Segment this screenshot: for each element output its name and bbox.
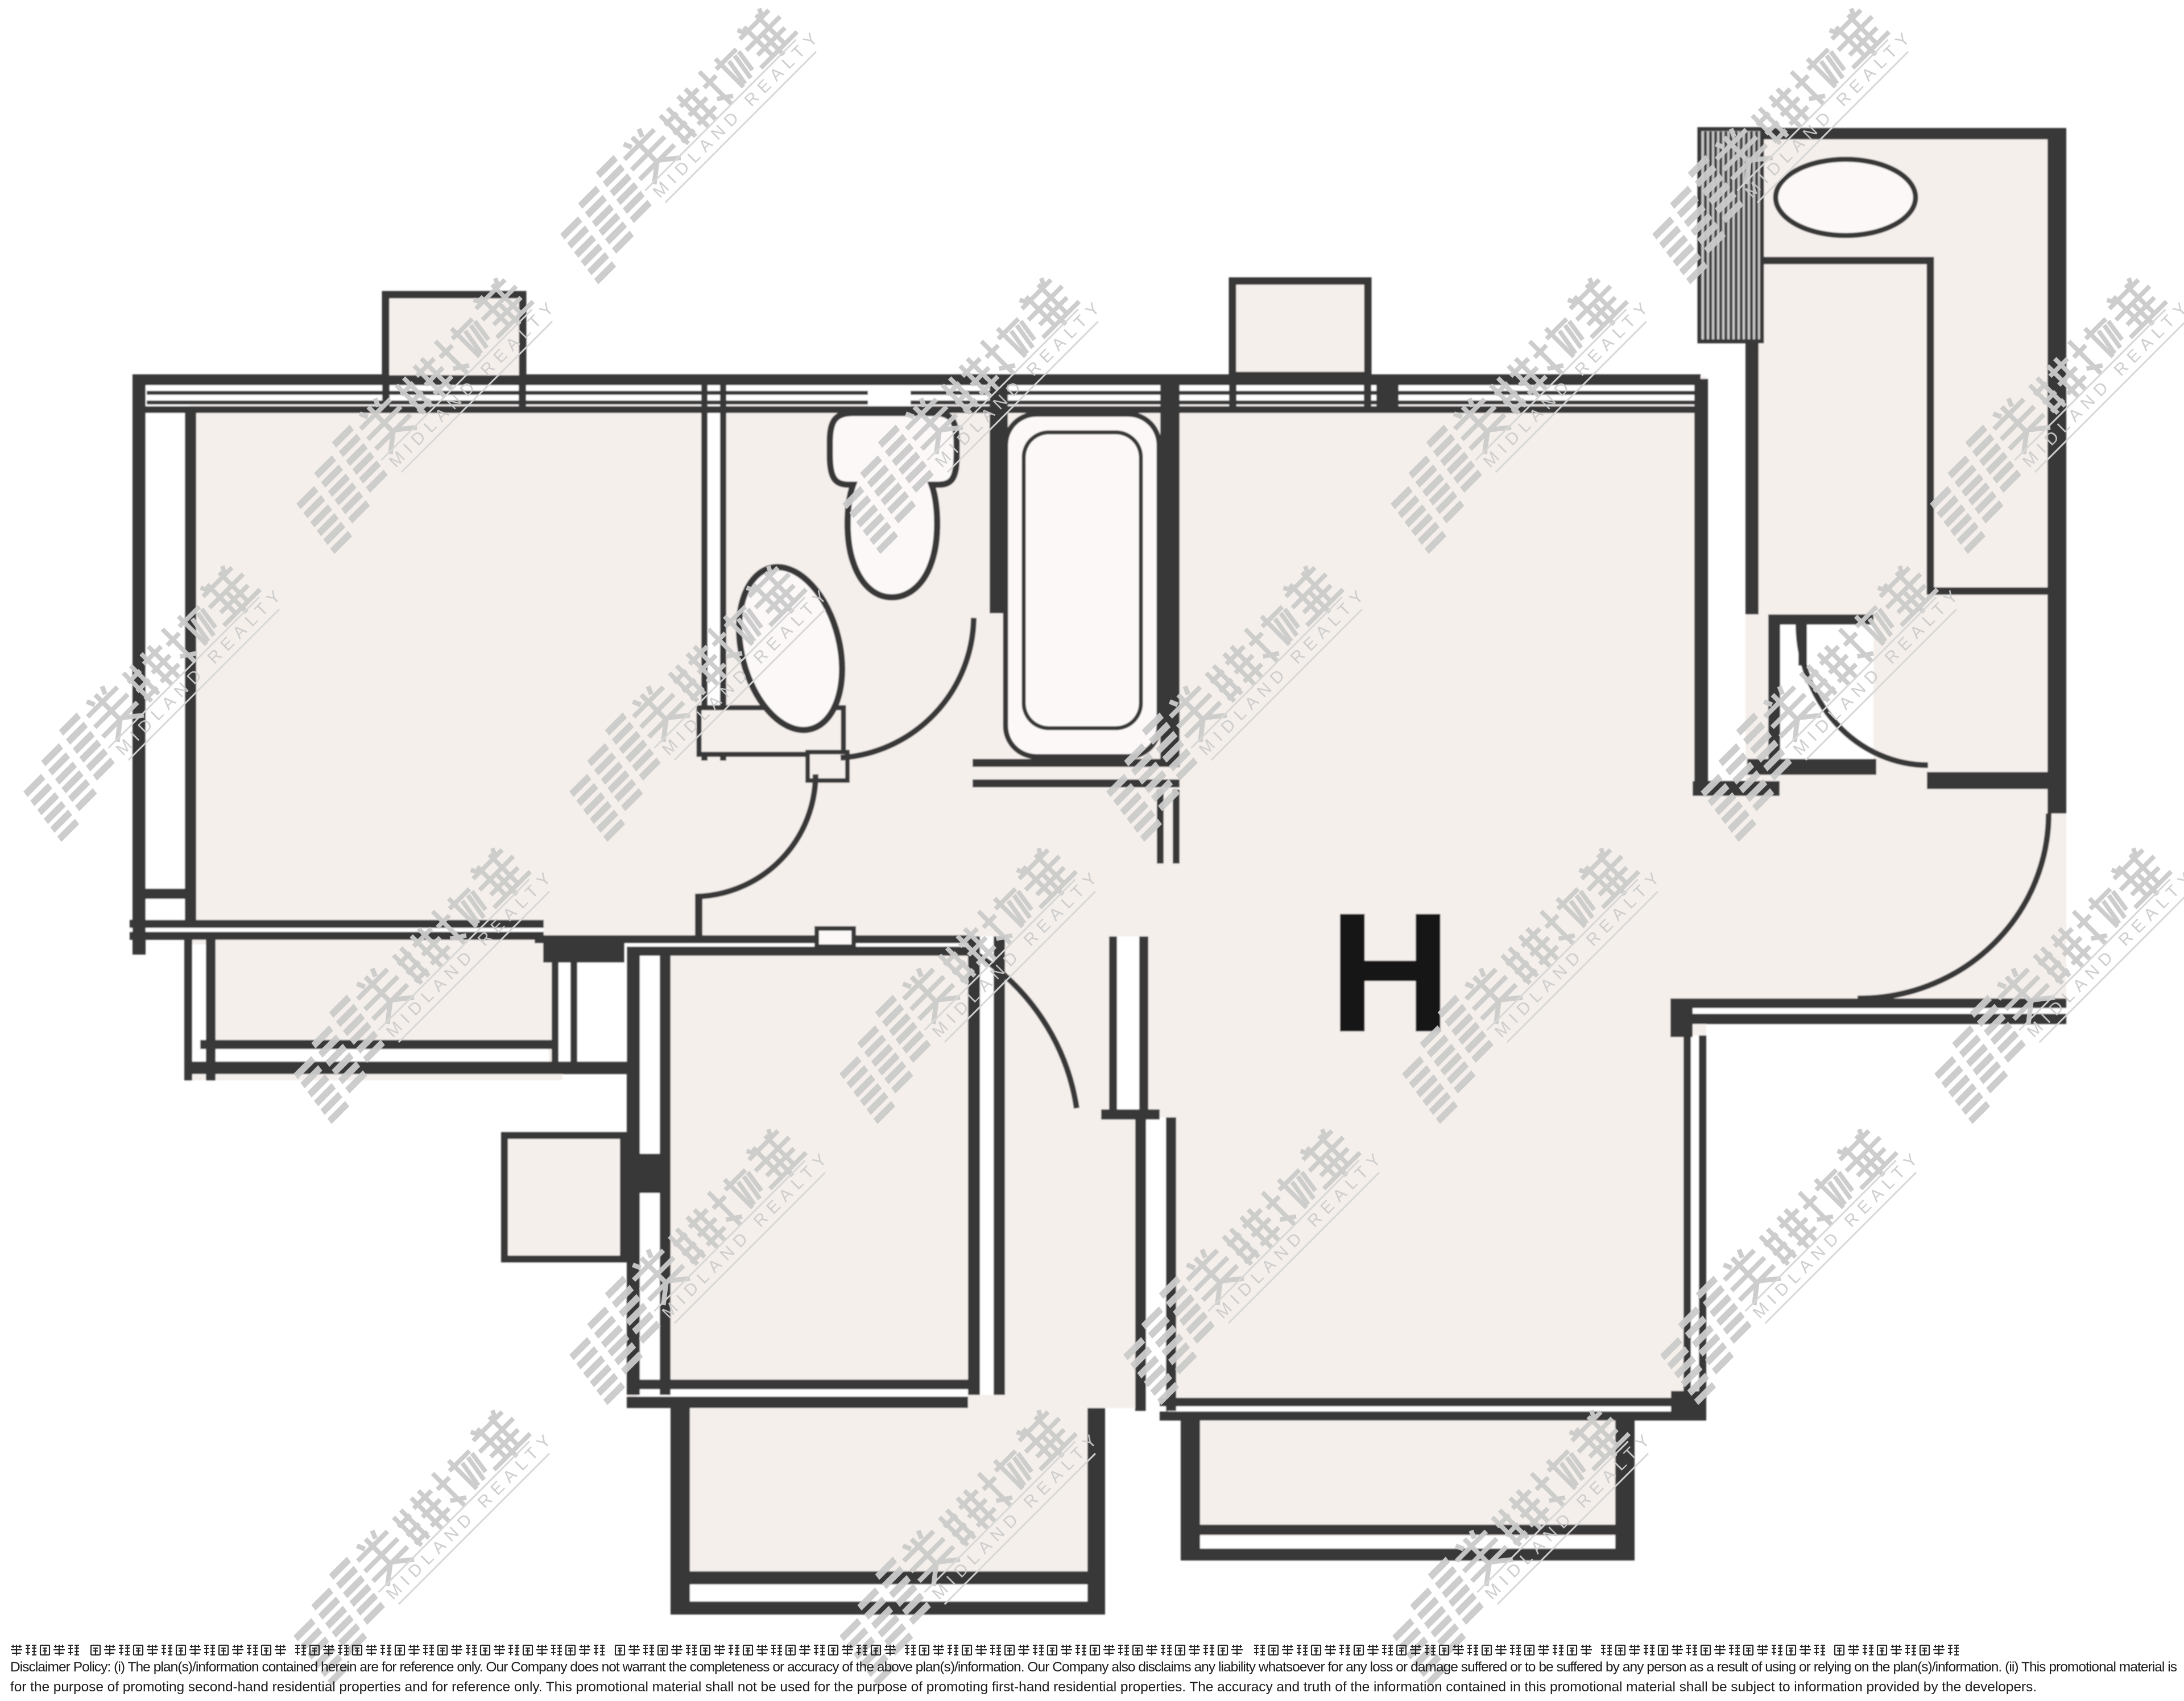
svg-text:Disclaimer Policy: (i) The pla: Disclaimer Policy: (i) The plan(s)/infor… bbox=[10, 1659, 2177, 1675]
svg-text:for the purpose of promoting s: for the purpose of promoting second-hand… bbox=[10, 1679, 2037, 1695]
